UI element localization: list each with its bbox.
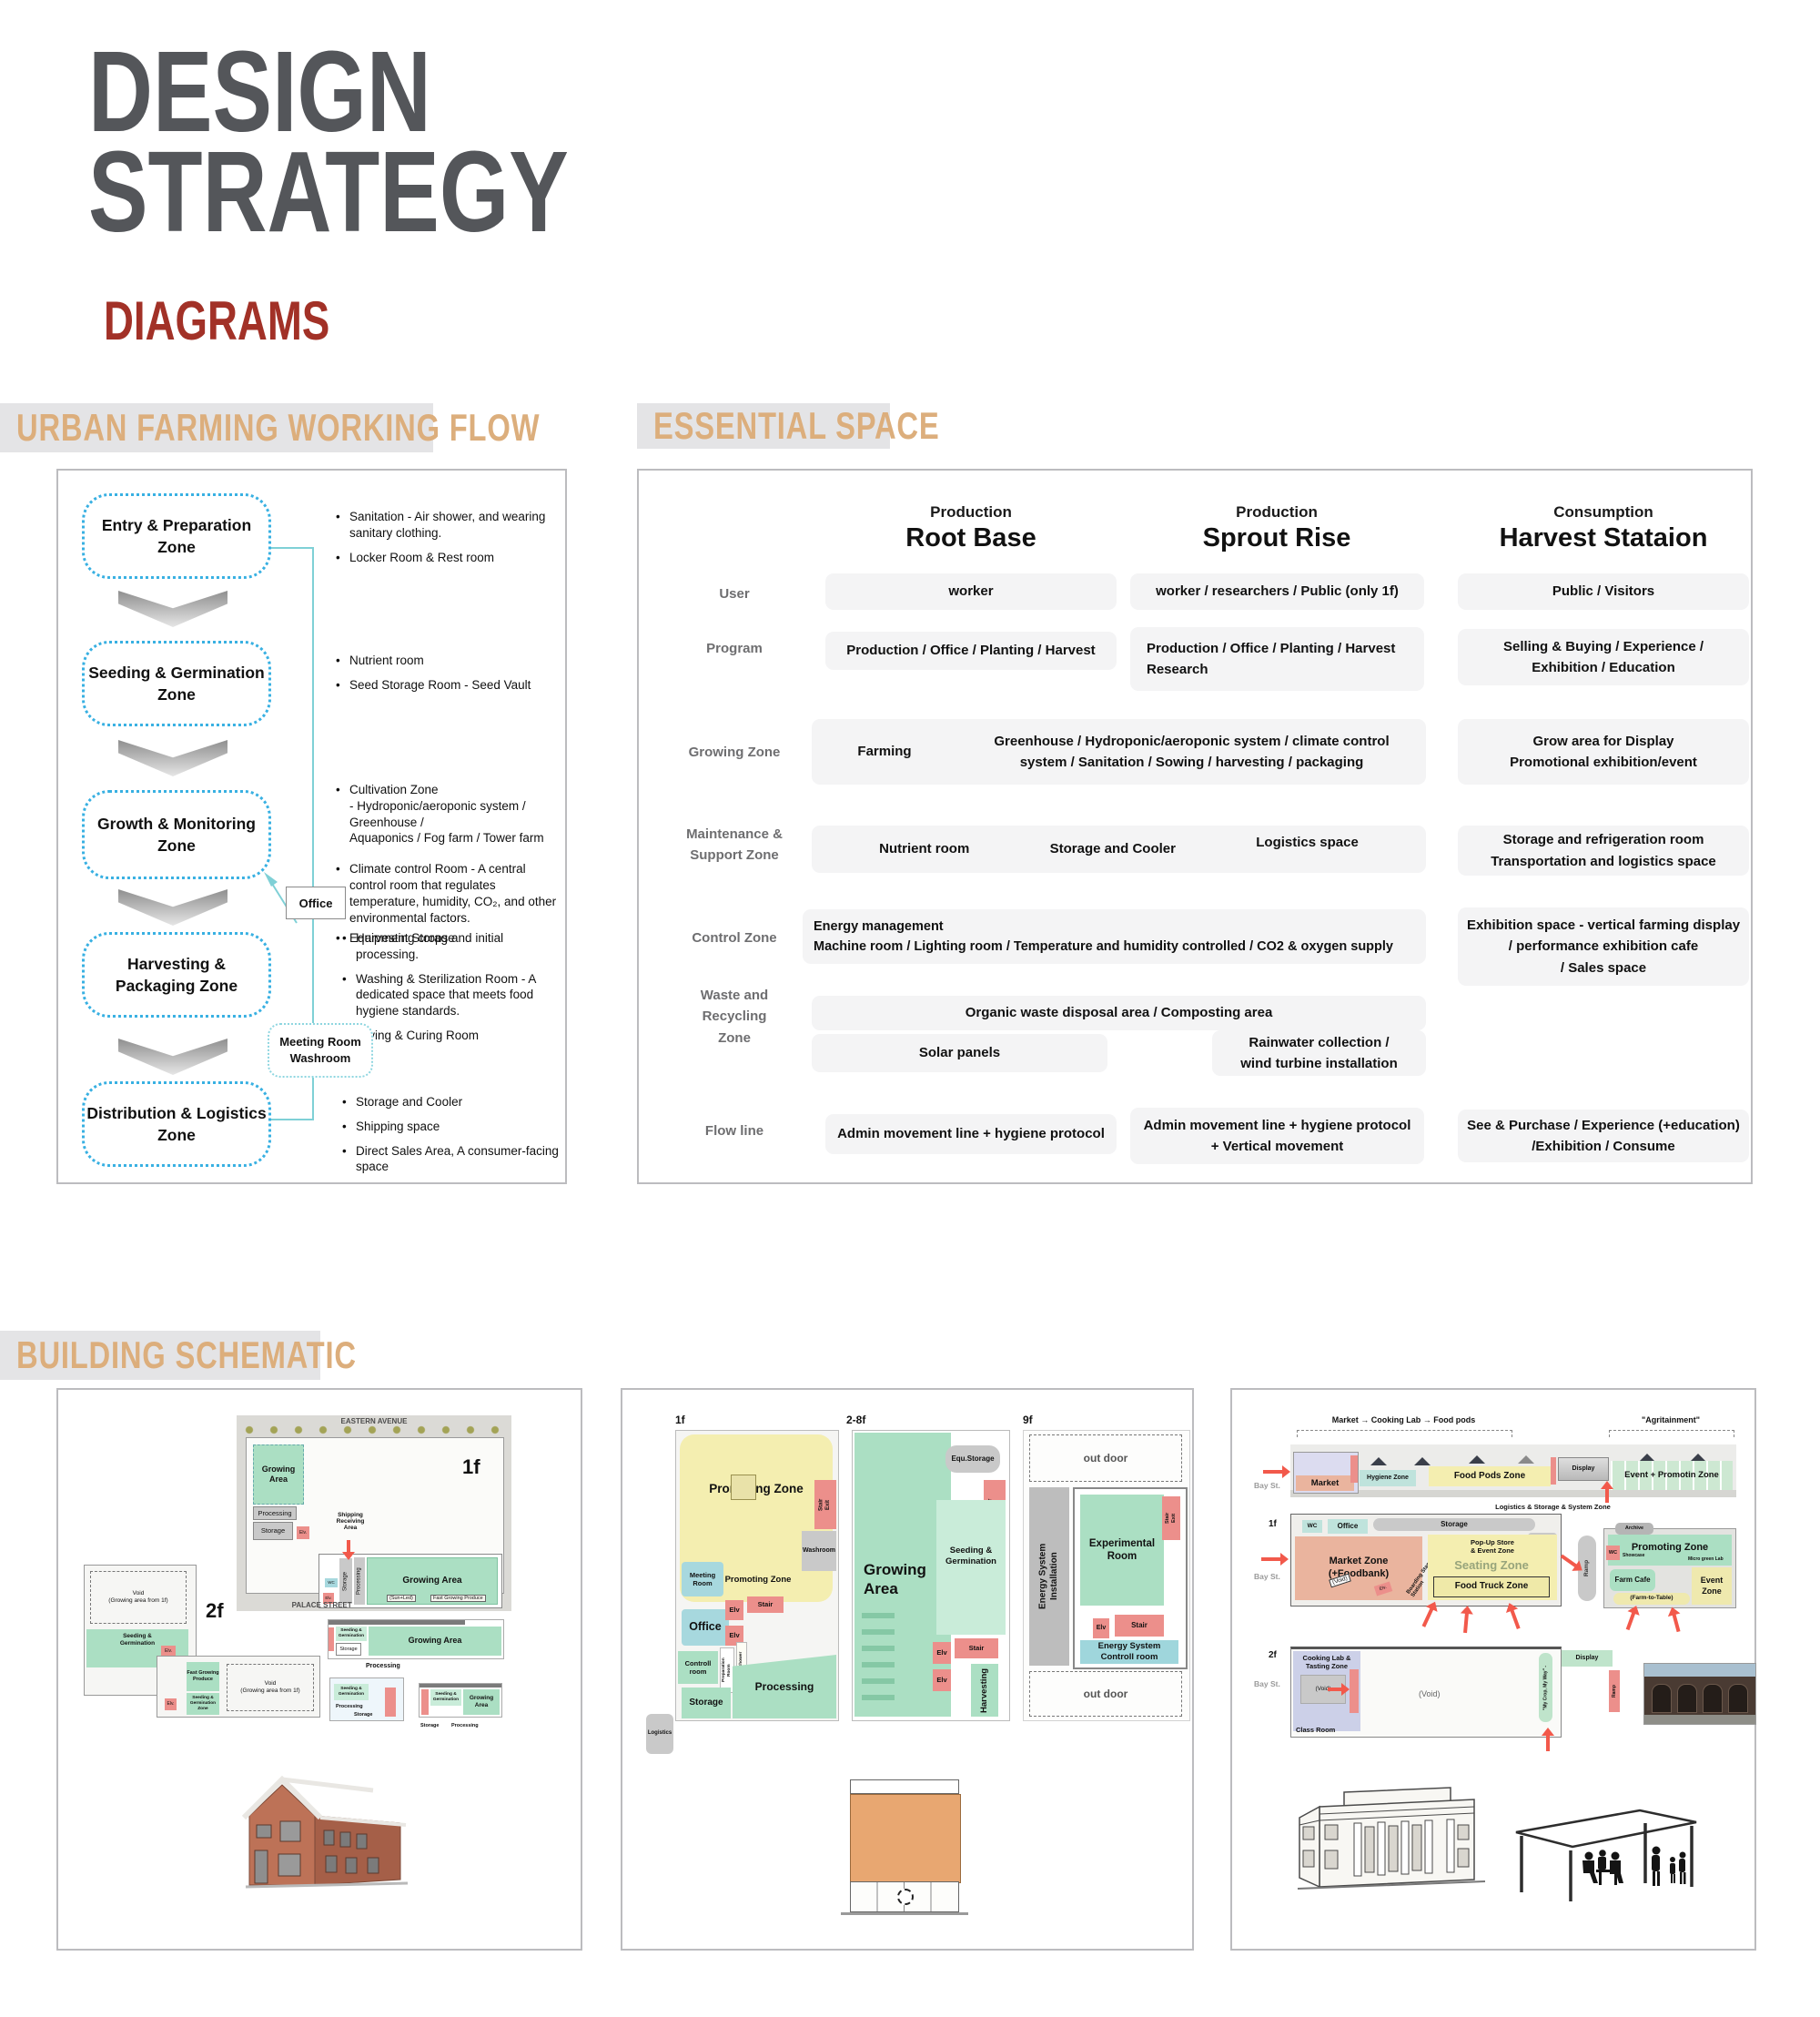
ramp-arrow xyxy=(1561,1555,1578,1568)
processing-room: Processing xyxy=(253,1506,297,1520)
section-title-space: ESSENTIAL SPACE xyxy=(653,404,939,448)
section-drawing-gable: Seeding & Germination Processing Storage xyxy=(329,1677,404,1721)
cell-growing-harveststation: Grow area for Display Promotional exhibi… xyxy=(1458,719,1749,785)
schematic-panel-sproutrise: 1f 2-8f 9f Promoting Zone Promoting Zone… xyxy=(621,1388,1194,1951)
growing-farming-label: Farming xyxy=(812,741,957,762)
grow-shelf xyxy=(862,1646,895,1651)
roof-icon xyxy=(1370,1457,1387,1465)
market-band: Market xyxy=(1296,1475,1354,1491)
section-storage: Storage xyxy=(354,1712,372,1718)
photo-window xyxy=(1652,1684,1672,1713)
storage-room: Storage xyxy=(253,1522,293,1540)
section-seeding: Seeding & Germination xyxy=(336,1627,367,1641)
mycrop-display-pill: "My Crop, My Way" - xyxy=(1539,1653,1552,1722)
section-bar-space: ESSENTIAL SPACE xyxy=(637,403,890,449)
bracket-label-right: "Agritainment" xyxy=(1609,1415,1733,1424)
office-room: Office xyxy=(682,1609,729,1646)
essential-space-panel: Production Root Base Production Sprout R… xyxy=(637,469,1753,1184)
display-box-2f: Display xyxy=(1562,1650,1613,1667)
photo-sky xyxy=(1644,1664,1755,1677)
cell-program-sproutrise: Production / Office / Planting / Harvest… xyxy=(1130,627,1424,691)
zone-growth-monitoring: Growth & Monitoring Zone xyxy=(82,790,271,879)
window-grid xyxy=(850,1794,959,1881)
floor-label-2-8f: 2-8f xyxy=(846,1414,865,1426)
floor-label-1f: 1f xyxy=(675,1414,685,1426)
office-box: Office xyxy=(286,887,346,919)
bay-st-label: Bay St. xyxy=(1254,1572,1280,1581)
maintenance-item: Storage and Cooler xyxy=(1050,838,1176,859)
lower-wing: Elv. Fast Growing Produce Seeding & Germ… xyxy=(157,1656,320,1718)
section-growing: Growing Area xyxy=(369,1627,501,1656)
promoting-wing: Archive Promoting Zone WC Showcase Micro… xyxy=(1603,1528,1736,1608)
storage-room: Storage xyxy=(682,1688,731,1718)
showcase-label: Showcase xyxy=(1623,1553,1644,1558)
sproutrise-plan-2-8f: Growing Area Equ.Storage Stair Exit Seed… xyxy=(852,1430,1010,1721)
logistics-room: Logistics xyxy=(646,1714,673,1754)
pavilion-people-illustration xyxy=(1512,1798,1702,1909)
logistics-storage-system-label: Logistics & Storage & System Zone xyxy=(1451,1503,1655,1511)
zone-entry-preparation: Entry & Preparation Zone xyxy=(82,493,271,579)
cell-waste-rain: Rainwater collection / wind turbine inst… xyxy=(1212,1030,1426,1076)
column-category: Production xyxy=(1131,503,1422,522)
harvest-plan-2f: Cooking Lab & Tasting Zone (Void) Class … xyxy=(1290,1647,1562,1738)
zone-seeding-germination: Seeding & Germination Zone xyxy=(82,641,271,726)
row-label-growing: Growing Zone xyxy=(648,742,821,763)
market-zone: Market Zone (+Foodbank) xyxy=(1295,1536,1422,1600)
bay-st-label: Bay St. xyxy=(1254,1679,1280,1688)
maintenance-item: Nutrient room xyxy=(879,838,969,859)
stair: Stair xyxy=(955,1638,998,1658)
floor-label-2f: 2f xyxy=(206,1599,224,1623)
building-section-strip: Market Hygiene Zone Food Pods Zone Displ… xyxy=(1290,1444,1736,1497)
popup-store-label: Pop-Up Store & Event Zone xyxy=(1471,1538,1514,1556)
photo-street xyxy=(1644,1715,1755,1724)
event-zone: Event Zone xyxy=(1692,1567,1732,1605)
row-label-program: Program xyxy=(648,638,821,659)
core-bar xyxy=(1551,1457,1556,1485)
parapet xyxy=(850,1779,959,1794)
cell-waste-span: Organic waste disposal area / Composting… xyxy=(812,996,1426,1030)
core-bar xyxy=(1350,1669,1359,1713)
outdoor-area-bottom: out door xyxy=(1029,1671,1182,1717)
grow-shelf xyxy=(862,1695,895,1700)
archive-room: Archive xyxy=(1615,1523,1653,1535)
growing-area-label: Growing Area xyxy=(864,1560,926,1599)
grow-shelf xyxy=(862,1613,895,1618)
cell-waste-solar: Solar panels xyxy=(812,1034,1107,1072)
floor-label-1f: 1f xyxy=(1269,1519,1277,1529)
column-category: Production xyxy=(825,503,1117,522)
grow-shelf xyxy=(862,1678,895,1684)
storage-band: Storage xyxy=(1373,1518,1535,1531)
elevator: Elv xyxy=(1093,1618,1109,1638)
presentation-board: DESIGN STRATEGY DIAGRAMS URBAN FARMING W… xyxy=(0,0,1820,2017)
seating-zone-label: Seating Zone xyxy=(1437,1558,1546,1572)
growing-area-label: Growing Area xyxy=(402,1576,461,1587)
schematic-panel-rootbase: EASTERN AVENUE Growing Area Processing S… xyxy=(56,1388,582,1951)
seeding-zone-room: Seeding & Germination Zone xyxy=(187,1693,219,1715)
section-processing: Processing xyxy=(336,1704,363,1709)
stair-exit: Stair Exit xyxy=(814,1480,836,1529)
display-box: Display xyxy=(1558,1457,1609,1481)
wc-room: WC xyxy=(325,1578,338,1587)
food-truck-zone: Food Truck Zone xyxy=(1433,1576,1550,1597)
food-pods-zone: Food Pods Zone xyxy=(1429,1466,1551,1486)
shipping-label: Shipping Receiving Area xyxy=(328,1512,373,1531)
meeting-room: Meeting Room xyxy=(682,1562,723,1596)
farm-to-table: (Farm-to-Table) xyxy=(1613,1593,1690,1605)
roof-bar xyxy=(420,1684,501,1688)
column-name: Root Base xyxy=(825,523,1117,553)
bracket-line xyxy=(1297,1430,1512,1437)
core-bar xyxy=(421,1689,429,1715)
core-bar xyxy=(385,1688,396,1717)
photo-window xyxy=(1677,1684,1697,1713)
photo-window xyxy=(1703,1684,1723,1713)
entry-emblem xyxy=(897,1889,914,1905)
cell-maintenance-span: Nutrient room Storage and Cooler Logisti… xyxy=(812,826,1426,873)
zone-distribution-logistics: Distribution & Logistics Zone xyxy=(82,1081,271,1167)
cell-program-rootbase: Production / Office / Planting / Harvest xyxy=(825,632,1117,670)
column-category: Consumption xyxy=(1458,503,1749,522)
roof-icon xyxy=(1469,1455,1485,1464)
section-drawing-small: Seeding & Germination Growing Area xyxy=(419,1683,502,1718)
main-room-outline: Experimental Room Stair Exit Elv Stair E… xyxy=(1073,1487,1188,1669)
photo-window xyxy=(1728,1684,1748,1713)
elevator: Elv xyxy=(933,1669,951,1691)
stair-exit: Stair Exit xyxy=(1162,1496,1180,1540)
cell-flowline-rootbase: Admin movement line + hygiene protocol xyxy=(825,1114,1117,1154)
stair: Stair xyxy=(1115,1615,1164,1637)
office-room: Office xyxy=(1328,1519,1368,1534)
south-wing: WC Elv. Storage Processing Growing Area … xyxy=(318,1554,502,1608)
void-center-label: (Void) xyxy=(1419,1689,1441,1698)
section-bar-schematic: BUILDING SCHEMATIC xyxy=(0,1331,320,1380)
energy-system-installation: Energy System Installation xyxy=(1029,1487,1069,1666)
row-label-control: Control Zone xyxy=(648,927,821,948)
streetview-photo xyxy=(1643,1663,1756,1725)
cell-maintenance-harveststation: Storage and refrigeration room Transport… xyxy=(1458,826,1749,876)
flow-arrow xyxy=(1463,1613,1469,1633)
section-processing-label: Processing xyxy=(451,1723,479,1728)
controll-room: Controll room xyxy=(678,1651,718,1684)
section-title-schematic: BUILDING SCHEMATIC xyxy=(16,1333,357,1377)
row-label-flowline: Flow line xyxy=(648,1120,821,1141)
logistics-arrow xyxy=(1605,1488,1609,1503)
entry-arrow xyxy=(1263,1470,1283,1474)
row-label-user: User xyxy=(648,583,821,604)
section-processing-label: Processing xyxy=(366,1663,400,1669)
cell-flowline-sproutrise: Admin movement line + hygiene protocol +… xyxy=(1130,1108,1424,1164)
harvesting-room: Harvesting xyxy=(971,1664,998,1717)
cell-flowline-harveststation: See & Purchase / Experience (+education)… xyxy=(1458,1110,1749,1162)
wc-room: WC xyxy=(1302,1520,1322,1533)
classical-building-illustration xyxy=(1294,1779,1500,1900)
sproutrise-plan-9f: out door Energy System Installation Expe… xyxy=(1023,1430,1190,1721)
street-trees xyxy=(244,1425,504,1434)
bracket-line xyxy=(1609,1430,1734,1437)
rootbase-plan-2f: Void (Growing area from 1f) Seeding & Ge… xyxy=(84,1565,320,1719)
cell-growing-span: Farming Greenhouse / Hydroponic/aeroponi… xyxy=(812,719,1426,785)
cell-user-sproutrise: worker / researchers / Public (only 1f) xyxy=(1130,573,1424,610)
section-bar-flow: URBAN FARMING WORKING FLOW xyxy=(0,403,433,452)
event-promotin-zone: Event + Promotin Zone xyxy=(1611,1461,1733,1490)
sproutrise-plan-1f: Promoting Zone Promoting Zone Stair Exit… xyxy=(675,1430,839,1721)
roof-icon xyxy=(1414,1457,1431,1465)
maintenance-item: Logistics space xyxy=(1256,832,1359,853)
elevator: Elv. xyxy=(297,1526,309,1539)
farm-cafe: Farm Cafe xyxy=(1610,1569,1655,1591)
microgreen-lab-label: Micro green Lab xyxy=(1688,1556,1724,1562)
flowchart-panel: Entry & Preparation Zone Seeding & Germi… xyxy=(56,469,567,1184)
section-seeding: Seeding & Germination xyxy=(430,1689,461,1706)
washroom: Washroom xyxy=(802,1531,836,1571)
street-label-top: EASTERN AVENUE xyxy=(237,1417,511,1425)
brick-building-illustration xyxy=(238,1770,413,1896)
class-room-label: Class Room xyxy=(1296,1726,1335,1734)
outdoor-area-top: out door xyxy=(1029,1434,1182,1482)
fast-growing-room: Fast Growing Produce xyxy=(187,1662,219,1691)
shipping-arrow xyxy=(347,1540,350,1553)
growing-span-text: Greenhouse / Hydroponic/aeroponic system… xyxy=(957,731,1426,774)
section-storage-label: Storage xyxy=(420,1723,439,1728)
tower-elevation xyxy=(850,1779,959,1916)
equipment-storage: Equ.Storage xyxy=(945,1445,1000,1473)
page-title: DESIGN STRATEGY xyxy=(88,42,600,241)
section-title-flow: URBAN FARMING WORKING FLOW xyxy=(16,406,540,450)
cell-control-harveststation: Exhibition space - vertical farming disp… xyxy=(1458,907,1749,986)
harvest-plan-1f: WC Office Storage Logistics Market Zone … xyxy=(1290,1514,1562,1607)
section-growing: Growing Area xyxy=(463,1689,500,1715)
floor-label-1f: 1f xyxy=(462,1455,480,1479)
flow-arrow xyxy=(1672,1614,1680,1632)
meeting-washroom-box: Meeting Room Washroom xyxy=(268,1023,373,1078)
elevator-core-hatch xyxy=(731,1475,756,1500)
section-seeding: Seeding & Germination xyxy=(334,1684,369,1700)
column-name: Harvest Stataion xyxy=(1458,523,1749,553)
preparation-room: Preparation Room xyxy=(720,1647,734,1693)
zone-harvesting-packaging: Harvesting & Packaging Zone xyxy=(82,932,271,1018)
flow-arrow xyxy=(1546,1735,1550,1751)
elevator-core xyxy=(329,1627,334,1651)
energy-system-controll-room: Energy System Controll room xyxy=(1080,1640,1178,1664)
entry-arrow xyxy=(1261,1557,1281,1561)
void-area: Void (Growing area from 1f) xyxy=(90,1571,187,1624)
schematic-panel-harveststation: Market → Cooking Lab → Food pods "Agrita… xyxy=(1230,1388,1756,1951)
floor-label-2f: 2f xyxy=(1269,1650,1277,1660)
stair: Stair xyxy=(747,1596,784,1613)
ground-line xyxy=(841,1912,968,1915)
flow-arrow xyxy=(1626,1612,1636,1630)
roof-icon xyxy=(1691,1454,1705,1461)
floor-label-9f: 9f xyxy=(1023,1414,1033,1426)
roof-icon xyxy=(1518,1455,1534,1464)
void-area-2: Void (Growing area from 1f) xyxy=(227,1664,314,1711)
section-storage: Storage xyxy=(336,1643,361,1656)
flow-arrow xyxy=(1510,1609,1520,1629)
section-drawing-long: Seeding & Germination Storage Growing Ar… xyxy=(328,1619,504,1659)
void-arrow xyxy=(1328,1688,1342,1691)
bracket-label-left: Market → Cooking Lab → Food pods xyxy=(1297,1415,1511,1424)
page-subtitle: DIAGRAMS xyxy=(104,289,329,352)
cell-program-harveststation: Selling & Buying / Experience / Exhibiti… xyxy=(1458,629,1749,685)
processing-room-vertical: Processing xyxy=(354,1557,365,1605)
roof-bar xyxy=(329,1620,465,1625)
elevator: Elv. xyxy=(165,1698,177,1710)
row-label-maintenance: Maintenance & Support Zone xyxy=(648,824,821,867)
experimental-room: Experimental Room xyxy=(1080,1495,1164,1606)
fastgrow-label: Fast Growing Produce xyxy=(430,1595,486,1602)
growing-area-room: Growing Area xyxy=(253,1444,304,1505)
wc-room: WC xyxy=(1606,1546,1620,1560)
core-bar xyxy=(1350,1455,1358,1483)
elevator: Elv xyxy=(933,1642,951,1664)
promoting-zone-label: Promoting Zone xyxy=(709,1482,804,1497)
cell-control-span: Energy management Machine room / Lightin… xyxy=(803,909,1426,964)
hygiene-zone: Hygiene Zone xyxy=(1360,1470,1416,1486)
bay-st-label: Bay St. xyxy=(1254,1481,1280,1490)
elevator: Elv xyxy=(725,1600,743,1620)
seeding-germination: Seeding & Germination xyxy=(936,1500,1006,1635)
flow-arrow xyxy=(1422,1607,1434,1627)
roof-icon xyxy=(1640,1454,1654,1461)
market-hall: Market xyxy=(1293,1452,1359,1494)
column-name: Sprout Rise xyxy=(1131,523,1422,553)
processing-room: Processing xyxy=(733,1655,836,1718)
cell-user-harveststation: Public / Visitors xyxy=(1458,573,1749,610)
cell-user-rootbase: worker xyxy=(825,573,1117,610)
grow-shelf xyxy=(862,1629,895,1635)
row-label-waste: Waste and Recycling Zone xyxy=(648,985,821,1049)
storage-room-vertical: Storage xyxy=(339,1558,352,1604)
grow-shelf xyxy=(862,1662,895,1667)
ramp-2f: Ramp xyxy=(1609,1670,1620,1712)
